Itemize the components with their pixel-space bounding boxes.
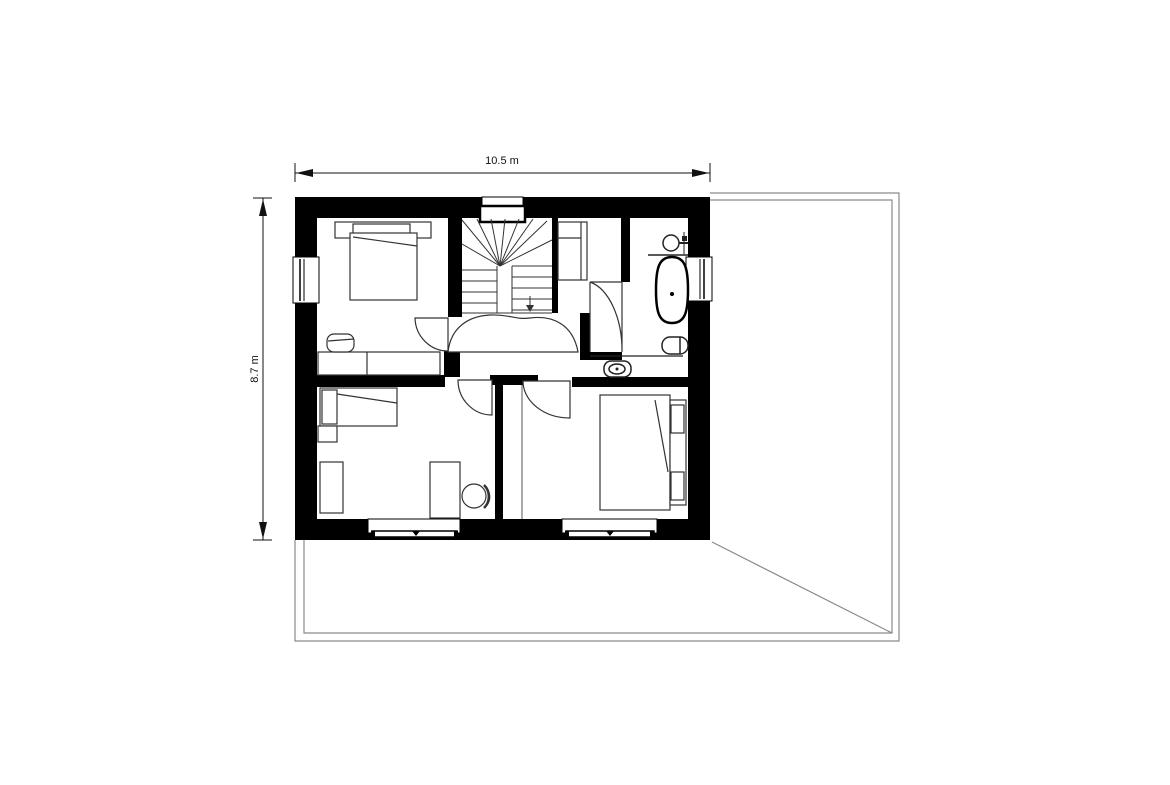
dim-arrow-down — [259, 522, 267, 539]
dim-arrow-up — [259, 199, 267, 216]
desk-chair — [462, 484, 490, 508]
wardrobe-closet — [558, 222, 587, 280]
dim-arrow-right — [692, 169, 709, 177]
window-left — [293, 257, 319, 303]
freestanding-bathtub — [656, 257, 688, 323]
single-bed — [320, 388, 397, 426]
dimension-height-label: 8.7 m — [249, 355, 261, 383]
dimension-width-label: 10.5 m — [485, 155, 519, 167]
toilet — [662, 337, 688, 354]
bidet — [604, 361, 631, 377]
nightstand — [318, 426, 337, 442]
roof-hip-diagonal — [712, 542, 892, 633]
sofa-cushion — [327, 334, 354, 352]
double-bed-bottom-right — [600, 395, 686, 510]
dim-arrow-left — [296, 169, 313, 177]
window-top — [482, 197, 523, 206]
floor-plan-page: 10.5 m 8.7 m — [0, 0, 1170, 785]
dimension-line-top: 10.5 m — [295, 155, 710, 182]
window-right — [686, 257, 712, 301]
floor-plan-drawing: 10.5 m 8.7 m — [0, 0, 1170, 785]
wardrobe — [320, 462, 343, 513]
desk — [430, 462, 460, 518]
dimension-line-left: 8.7 m — [249, 198, 272, 540]
window-bottom-left — [368, 519, 460, 537]
window-bottom-right — [562, 519, 657, 537]
